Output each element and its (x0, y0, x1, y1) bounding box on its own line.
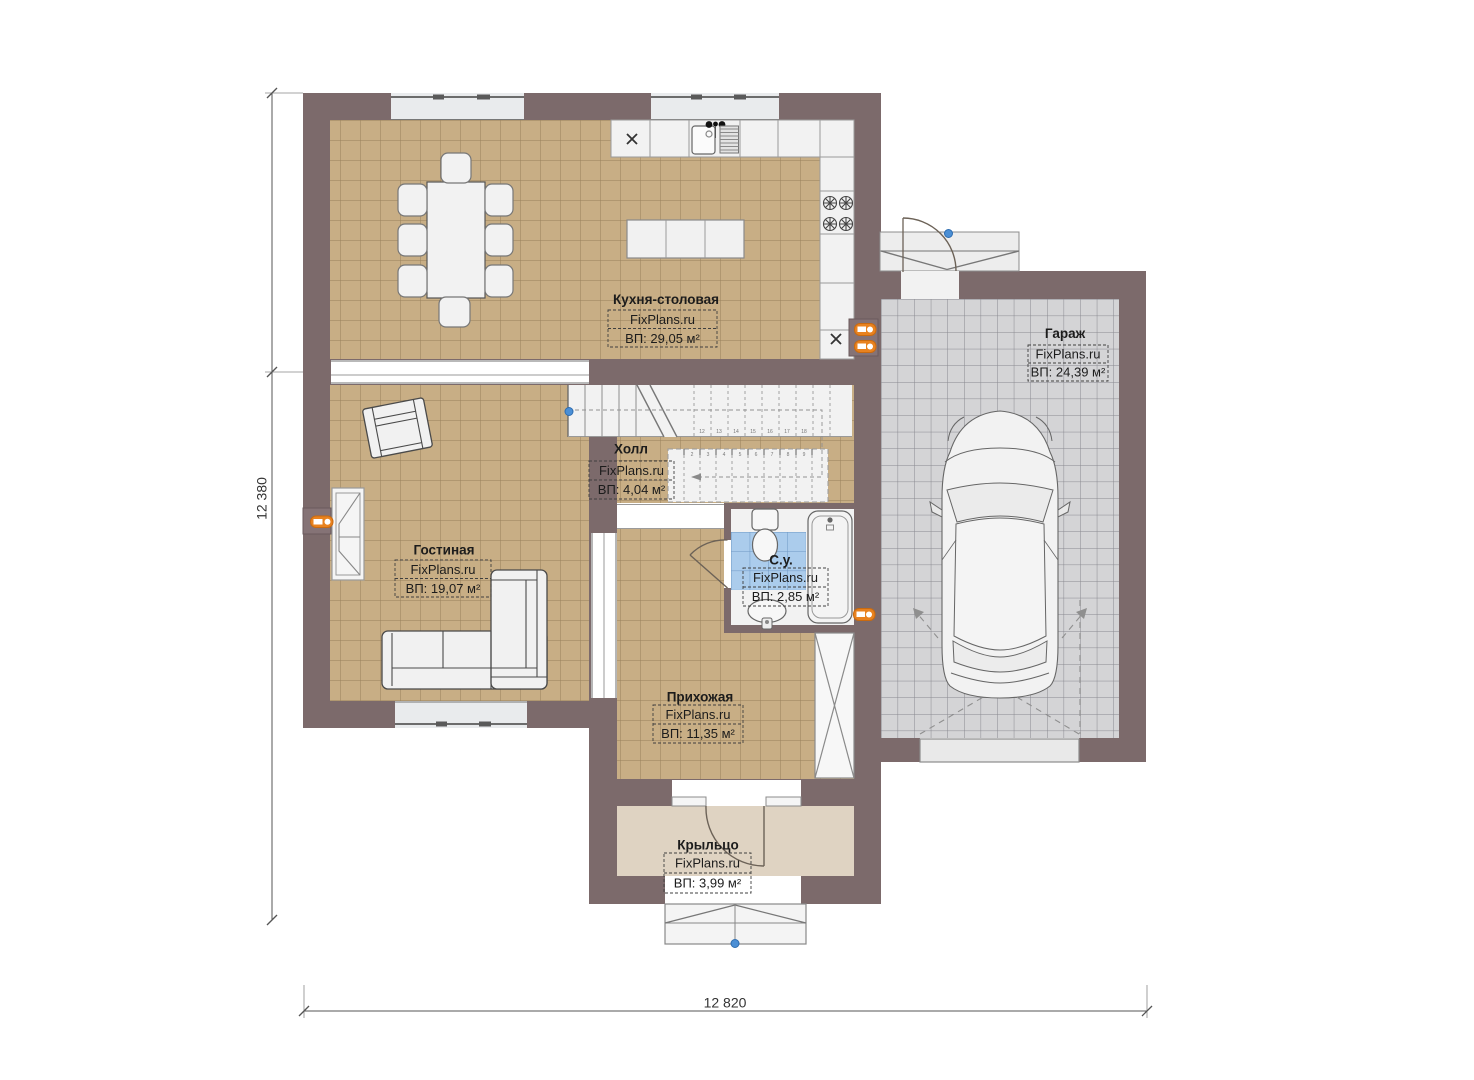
svg-text:ВП: 2,85 м²: ВП: 2,85 м² (752, 589, 820, 604)
svg-text:6: 6 (755, 452, 758, 458)
svg-text:13: 13 (716, 429, 722, 435)
svg-text:FixPlans.ru: FixPlans.ru (675, 856, 740, 871)
svg-text:ВП: 4,04 м²: ВП: 4,04 м² (598, 482, 666, 497)
svg-text:FixPlans.ru: FixPlans.ru (410, 562, 475, 577)
svg-text:12 820: 12 820 (704, 995, 747, 1011)
svg-text:Гостиная: Гостиная (413, 543, 474, 558)
svg-text:3: 3 (707, 452, 710, 458)
svg-text:Кухня-столовая: Кухня-столовая (613, 292, 719, 307)
svg-text:FixPlans.ru: FixPlans.ru (753, 570, 818, 585)
svg-text:12 380: 12 380 (254, 477, 270, 520)
svg-text:ВП: 11,35 м²: ВП: 11,35 м² (661, 726, 735, 741)
svg-text:8: 8 (787, 452, 790, 458)
svg-text:ВП: 3,99 м²: ВП: 3,99 м² (674, 876, 742, 891)
svg-text:ВП: 29,05 м²: ВП: 29,05 м² (625, 331, 700, 346)
svg-text:ВП: 19,07 м²: ВП: 19,07 м² (406, 581, 481, 596)
svg-text:9: 9 (803, 452, 806, 458)
svg-text:FixPlans.ru: FixPlans.ru (630, 312, 695, 327)
svg-text:Гараж: Гараж (1045, 326, 1086, 341)
svg-text:FixPlans.ru: FixPlans.ru (1035, 347, 1100, 362)
svg-text:С.у.: С.у. (769, 553, 793, 568)
svg-text:16: 16 (767, 429, 773, 435)
svg-text:14: 14 (733, 429, 739, 435)
svg-text:2: 2 (691, 452, 694, 458)
svg-text:15: 15 (750, 429, 756, 435)
svg-text:18: 18 (801, 429, 807, 435)
svg-text:17: 17 (784, 429, 790, 435)
svg-text:Крыльцо: Крыльцо (677, 838, 738, 853)
svg-text:ВП: 24,39 м²: ВП: 24,39 м² (1031, 365, 1106, 380)
svg-text:FixPlans.ru: FixPlans.ru (599, 463, 664, 478)
svg-text:Холл: Холл (614, 442, 648, 457)
svg-text:4: 4 (723, 452, 726, 458)
svg-text:5: 5 (739, 452, 742, 458)
svg-text:Прихожая: Прихожая (667, 690, 734, 705)
svg-text:7: 7 (771, 452, 774, 458)
svg-text:12: 12 (699, 429, 705, 435)
svg-text:FixPlans.ru: FixPlans.ru (665, 707, 730, 722)
